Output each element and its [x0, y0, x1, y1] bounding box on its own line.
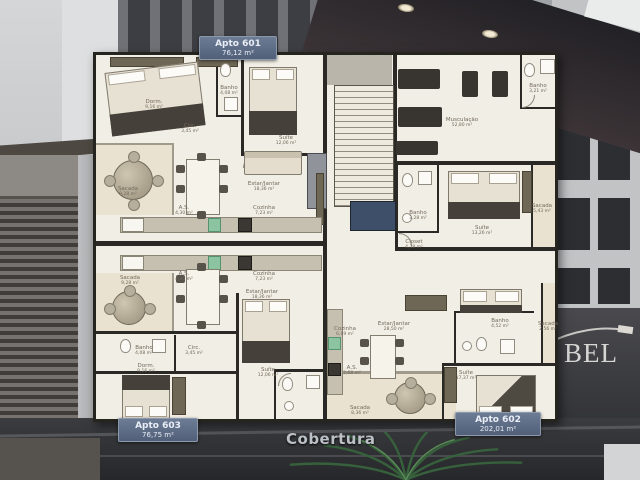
wall — [276, 369, 325, 372]
room-label: Estar/Jantar18,36 m² — [248, 181, 280, 192]
bed-throw — [122, 375, 170, 390]
room-label: Cozinha7,23 m² — [253, 205, 275, 216]
room-label: Circ.3,45 m² — [185, 345, 203, 356]
wall — [174, 335, 176, 371]
sofa — [460, 289, 522, 313]
shower — [306, 375, 320, 389]
chair — [197, 321, 206, 329]
toilet — [282, 377, 293, 391]
toilet — [524, 63, 535, 77]
bed — [242, 299, 290, 363]
louver-vent — [0, 196, 78, 437]
bed — [448, 171, 520, 219]
wall — [216, 115, 243, 117]
chair — [104, 175, 116, 187]
room-label: Estar/Jantar18,36 m² — [246, 289, 278, 300]
unit-name: Apto 601 — [204, 39, 272, 49]
bed — [122, 375, 170, 419]
bed-throw — [249, 111, 297, 135]
pillow — [108, 70, 146, 85]
room-label: Sacada5,43 m² — [532, 203, 552, 214]
chair — [219, 275, 228, 283]
chair — [197, 153, 206, 161]
bed-throw — [448, 202, 520, 219]
room-label: Closet4,38 m² — [405, 239, 423, 250]
facade-window — [598, 198, 630, 250]
facade-window — [558, 198, 590, 250]
room-label: Sacada2,56 m² — [538, 321, 558, 332]
room-label: Banho3,21 m² — [529, 83, 547, 94]
basin — [462, 341, 472, 351]
screenshot-root: BEL — [0, 0, 640, 480]
bed — [249, 67, 297, 135]
room-label: Dorm.9,16 m² — [137, 363, 155, 374]
room-label: Sacada9,28 m² — [118, 186, 138, 197]
room-label: Cozinha6,89 m² — [334, 326, 356, 337]
round-table — [386, 377, 434, 419]
cushion — [495, 291, 519, 302]
room-label: Sacada8,36 m² — [350, 405, 370, 416]
pillow — [158, 64, 196, 79]
gym-equipment — [398, 107, 442, 127]
shower — [500, 339, 515, 354]
staircase — [334, 85, 394, 207]
chair — [386, 393, 398, 405]
kitchen-sink — [208, 218, 221, 232]
chair — [197, 211, 206, 219]
chair — [152, 175, 164, 187]
floor-title: Cobertura — [286, 430, 376, 448]
room-label: Dorm.9,16 m² — [145, 99, 163, 110]
street-lamp — [544, 318, 638, 352]
chair — [395, 339, 404, 347]
gym-equipment — [398, 69, 440, 89]
kitchen-counter — [120, 217, 322, 233]
room-label: Banho3,28 m² — [409, 210, 427, 221]
room-label: Banho4,08 m² — [220, 85, 238, 96]
wall — [437, 165, 439, 233]
sofa-back — [245, 152, 301, 158]
basin — [284, 401, 294, 411]
chair — [128, 199, 140, 211]
room-label: Suíte12,06 m² — [276, 135, 297, 146]
balcony-rail — [96, 143, 172, 145]
shower — [418, 171, 432, 185]
appliance — [122, 218, 144, 232]
toilet — [120, 339, 131, 353]
wardrobe — [522, 171, 532, 213]
bottom-left-wall — [0, 438, 100, 480]
round-table — [104, 151, 162, 209]
wall — [236, 293, 239, 419]
wardrobe — [172, 377, 186, 415]
stove — [238, 256, 252, 270]
pillow — [489, 173, 517, 184]
chair — [360, 357, 369, 365]
unit-tag-bottom-left: Apto 603 76,75 m² — [118, 418, 198, 442]
room-label: Sacada9,28 m² — [120, 275, 140, 286]
table-top — [370, 335, 396, 379]
bed-throw — [242, 341, 290, 363]
sofa — [244, 151, 302, 175]
room-label: Suíte17,37 m² — [456, 370, 477, 381]
chair — [124, 285, 136, 297]
chair — [104, 303, 116, 315]
pillow — [269, 301, 287, 312]
toilet — [476, 337, 487, 351]
unit-name: Apto 603 — [123, 421, 193, 431]
cushion — [463, 291, 487, 302]
sofa-front — [460, 305, 522, 313]
unit-tag-bottom-right: Apto 602 202,01 m² — [455, 412, 541, 436]
pillow — [276, 69, 294, 80]
kitchen-counter — [327, 309, 343, 395]
stove — [328, 363, 341, 376]
wall — [96, 331, 238, 334]
room-label: Banho4,08 m² — [135, 345, 153, 356]
room-label: Circ.3,45 m² — [181, 123, 199, 134]
floor-plan: Sacada9,28 m² Dorm.9,16 m² Banho4,08 m² … — [93, 52, 558, 422]
unit-tag-top: Apto 601 76,12 m² — [199, 36, 277, 60]
room-label: A.S.4,30 m² — [175, 205, 193, 216]
room-label: A.S.4,30 m² — [175, 271, 193, 282]
room-label: A.S.2,68 m² — [343, 365, 361, 376]
facade-window — [598, 268, 630, 304]
chair — [424, 393, 436, 405]
stove — [238, 218, 252, 232]
chair — [176, 165, 185, 173]
shower — [224, 97, 238, 111]
chair — [395, 357, 404, 365]
balcony-rail — [172, 273, 174, 333]
elevator-hall — [327, 55, 392, 85]
round-table — [104, 285, 154, 331]
pillow — [252, 69, 270, 80]
shower — [540, 59, 555, 74]
room-label: Suíte12,06 m² — [258, 367, 279, 378]
chair — [144, 303, 156, 315]
pillow — [149, 406, 167, 417]
bottom-right-wall — [604, 444, 640, 480]
wall — [96, 241, 327, 246]
pillow — [245, 301, 263, 312]
facade-window — [558, 268, 590, 304]
unit-area: 76,12 m² — [204, 49, 272, 57]
chair — [197, 263, 206, 271]
wall — [454, 311, 456, 365]
dining-table — [360, 331, 404, 381]
unit-area: 202,01 m² — [460, 425, 536, 433]
gym-equipment — [396, 141, 438, 155]
chair — [176, 295, 185, 303]
wall — [96, 371, 238, 374]
toilet — [402, 173, 413, 187]
unit-area: 76,75 m² — [123, 431, 193, 439]
balcony-rail — [172, 143, 174, 215]
pillow — [125, 406, 143, 417]
wall — [397, 231, 439, 233]
room-label: Estar/Jantar28,50 m² — [378, 321, 410, 332]
gym-equipment — [492, 71, 508, 97]
chair — [128, 151, 140, 163]
tv — [350, 201, 396, 231]
chair — [405, 377, 417, 389]
room-label: Musculação52,80 m² — [446, 117, 478, 128]
sideboard — [405, 295, 447, 311]
appliance — [122, 256, 144, 270]
unit-name: Apto 602 — [460, 415, 536, 425]
room-label: Cozinha7,23 m² — [253, 271, 275, 282]
shower — [152, 339, 166, 353]
wall — [241, 55, 244, 155]
toilet — [220, 63, 231, 77]
chair — [360, 339, 369, 347]
chair — [176, 185, 185, 193]
kitchen-sink — [328, 337, 341, 350]
chair — [219, 295, 228, 303]
pillow — [451, 173, 479, 184]
chair — [219, 165, 228, 173]
room-label: Suíte13,26 m² — [472, 225, 493, 236]
room-label: Banho4,52 m² — [491, 318, 509, 329]
wall — [442, 363, 555, 366]
gym-equipment — [462, 71, 478, 97]
chair — [219, 185, 228, 193]
